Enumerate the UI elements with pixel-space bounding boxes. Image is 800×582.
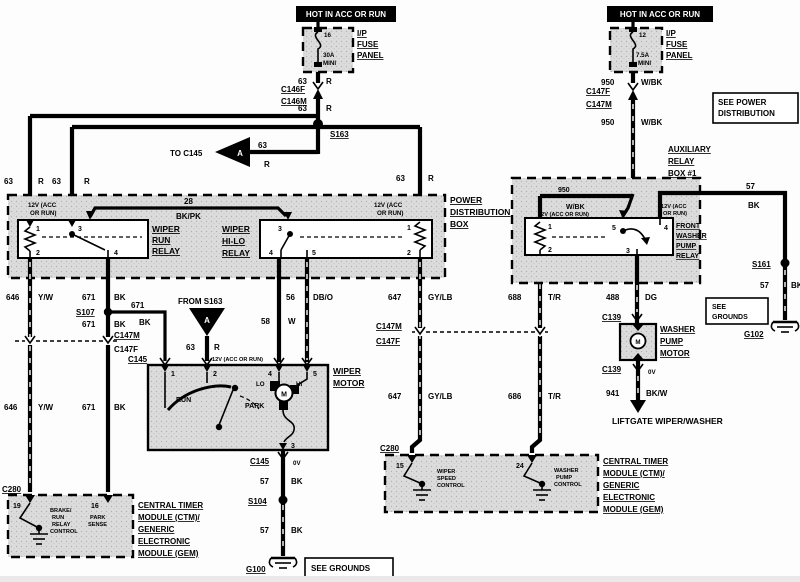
wire671-num: 671 bbox=[82, 293, 96, 302]
wire671-num-2: 671 bbox=[82, 320, 96, 329]
splice-s163-label: S163 bbox=[330, 130, 349, 139]
hilo-relay-pin4: 4 bbox=[269, 250, 273, 257]
off-page-arrow-a-down: A bbox=[189, 308, 225, 336]
wire671-color-2: BK bbox=[114, 320, 126, 329]
pdb-12v-3: 12V (ACC bbox=[374, 202, 403, 209]
hilo-relay-pin3: 3 bbox=[278, 226, 282, 233]
splice-s163-dot bbox=[313, 119, 323, 129]
arrow-a-letter-2: A bbox=[204, 316, 210, 325]
connector-c147-right-symbol bbox=[628, 83, 638, 100]
ctm-left-title-3: GENERIC bbox=[138, 525, 175, 534]
hilo-relay-pin2: 2 bbox=[407, 250, 411, 257]
washer-relay-name-1: FRONT bbox=[676, 223, 701, 230]
wire950-color: W/BK bbox=[641, 78, 663, 87]
wire57r-num: 57 bbox=[746, 182, 755, 191]
wire647-color-2: GY/LB bbox=[428, 392, 453, 401]
wire647-num-2: 647 bbox=[388, 392, 402, 401]
wire63-color-3: R bbox=[264, 160, 270, 169]
hilo-relay-name-3: RELAY bbox=[222, 248, 250, 258]
connector-c146f-label: C146F bbox=[281, 85, 305, 94]
pdb-12v-1: 12V (ACC bbox=[28, 202, 57, 209]
w63c-color: R bbox=[428, 174, 434, 183]
pdb-12v-2: OR RUN) bbox=[30, 210, 56, 217]
fuse-panel-left-name-1: I/P bbox=[357, 29, 367, 38]
see-power-label-2: DISTRIBUTION bbox=[718, 109, 775, 118]
wire57r-color-2: BK bbox=[791, 281, 800, 290]
wire646-color-2: Y/W bbox=[38, 403, 54, 412]
fuse-right-rating: 7.5A bbox=[636, 52, 650, 59]
washer-motor-name-1: WASHER bbox=[660, 325, 695, 334]
connector-c147-left bbox=[15, 336, 118, 345]
splice-s161-dot bbox=[781, 259, 790, 268]
w63a-num: 63 bbox=[4, 177, 13, 186]
w63a-color: R bbox=[38, 177, 44, 186]
ov-label-2: 0V bbox=[648, 369, 656, 376]
wire488-color: DG bbox=[645, 293, 657, 302]
fuse-panel-left: 16 30A MINI bbox=[303, 27, 353, 72]
pdb-title-2: DISTRIBUTION bbox=[450, 207, 510, 217]
see-grounds-right-1: SEE bbox=[712, 304, 726, 311]
wire950-num-3: 950 bbox=[558, 187, 570, 194]
washer-relay-pin3: 3 bbox=[626, 248, 630, 255]
wire57-num-1: 57 bbox=[260, 477, 269, 486]
wire63-num-4: 63 bbox=[186, 343, 195, 352]
fuse-right-size: MINI bbox=[638, 60, 651, 67]
wiper-hilo-relay: 3 4 5 1 2 bbox=[260, 220, 432, 258]
wiper-motor-m: M bbox=[281, 392, 287, 399]
from-s163-label: FROM S163 bbox=[178, 297, 223, 306]
run-relay-pin2: 2 bbox=[36, 250, 40, 257]
fuse-panel-right-name-2: FUSE bbox=[666, 40, 688, 49]
hilo-relay-name-2: HI-LO bbox=[222, 236, 246, 246]
wire57r-num-2: 57 bbox=[760, 281, 769, 290]
wire671-color-3: BK bbox=[114, 403, 126, 412]
washer-pump-motor-box: M bbox=[620, 324, 656, 360]
wire647-color: GY/LB bbox=[428, 293, 453, 302]
ctm-left-title-1: CENTRAL TIMER bbox=[138, 501, 203, 510]
wire950-color-3: W/BK bbox=[566, 204, 585, 211]
ground-g100-label: G100 bbox=[246, 565, 266, 574]
fuse-left-rating: 30A bbox=[323, 52, 335, 59]
wiring-diagram: HOT IN ACC OR RUN 16 30A MINI I/P FUSE P… bbox=[0, 0, 800, 582]
fuse-panel-left-name-3: PANEL bbox=[357, 51, 384, 60]
w63c-num: 63 bbox=[396, 174, 405, 183]
wire-688-686 bbox=[532, 255, 540, 453]
wire63-color-2: R bbox=[326, 104, 332, 113]
splice-s104-label: S104 bbox=[248, 497, 267, 506]
hot-banner-right-label: HOT IN ACC OR RUN bbox=[620, 10, 700, 19]
ctm-left-box: 19 BRAKE/ RUN RELAY CONTROL 16 PARK SENS… bbox=[8, 495, 133, 557]
wiring-diagram-page: HOT IN ACC OR RUN 16 30A MINI I/P FUSE P… bbox=[0, 0, 800, 582]
washer-relay-pin1: 1 bbox=[548, 224, 552, 231]
off-page-arrowhead bbox=[630, 400, 646, 413]
connector-c147f-mid-label: C147F bbox=[376, 337, 400, 346]
see-grounds-right-2: GROUNDS bbox=[712, 314, 748, 321]
run-relay-pin4: 4 bbox=[114, 250, 118, 257]
wire671-branch-color: BK bbox=[139, 318, 151, 327]
motor-12v-label: 12V (ACC OR RUN) bbox=[212, 357, 263, 363]
wiper-motor-pin3: 3 bbox=[291, 443, 295, 450]
wiper-motor-pin5: 5 bbox=[313, 371, 317, 378]
run-relay-name-3: RELAY bbox=[152, 246, 180, 256]
run-relay-name-2: RUN bbox=[152, 235, 170, 245]
wiper-motor-pin4: 4 bbox=[268, 371, 272, 378]
brake-label-4: CONTROL bbox=[50, 529, 78, 535]
run-relay-pin1: 1 bbox=[36, 226, 40, 233]
ctm-left-pin19: 19 bbox=[13, 503, 21, 510]
wire57-color-1: BK bbox=[291, 477, 303, 486]
ctm-right-pin24: 24 bbox=[516, 463, 524, 470]
liftgate-label: LIFTGATE WIPER/WASHER bbox=[612, 416, 723, 426]
ctm-right-title-3: GENERIC bbox=[603, 481, 640, 490]
connector-c147f-left-label: C147F bbox=[114, 345, 138, 354]
wiper-motor-box: 1 2 4 5 LO HI M 3 RUN PARK bbox=[148, 365, 328, 450]
wire-647 bbox=[412, 258, 420, 453]
to-c145-label: TO C145 bbox=[170, 149, 203, 158]
washer-relay-pin2: 2 bbox=[548, 247, 552, 254]
connector-c139-bottom-label: C139 bbox=[602, 365, 622, 374]
washer-relay-pin5: 5 bbox=[612, 225, 616, 232]
see-grounds-note-right: SEE GROUNDS bbox=[706, 298, 768, 324]
arrow-a-letter: A bbox=[237, 149, 243, 158]
connector-c147m-left-label: C147M bbox=[114, 331, 140, 340]
ground-g100-icon bbox=[269, 558, 296, 568]
hot-banner-left: HOT IN ACC OR RUN bbox=[296, 6, 396, 22]
fuse-right-pin: 12 bbox=[639, 32, 646, 39]
wiper-motor-name-2: MOTOR bbox=[333, 378, 364, 388]
brake-label-1: BRAKE/ bbox=[50, 508, 72, 514]
wiper-motor-pin2: 2 bbox=[213, 371, 217, 378]
pdb-title-3: BOX bbox=[450, 219, 469, 229]
wire63-color-4: R bbox=[214, 343, 220, 352]
hot-banner-left-label: HOT IN ACC OR RUN bbox=[306, 10, 386, 19]
washer-pump-3: CONTROL bbox=[554, 482, 582, 488]
ground-g102-label: G102 bbox=[744, 330, 764, 339]
washer-motor-name-2: PUMP bbox=[660, 337, 684, 346]
connector-c146-symbol bbox=[313, 82, 323, 99]
wire941-color: BK/W bbox=[646, 389, 668, 398]
ctm-left-title-4: ELECTRONIC bbox=[138, 537, 190, 546]
see-grounds-note-bottom: SEE GROUNDS bbox=[305, 558, 393, 577]
fuse-panel-right-name-1: I/P bbox=[666, 29, 676, 38]
wire28-num: 28 bbox=[184, 197, 193, 206]
splice-s107-label: S107 bbox=[76, 308, 95, 317]
wire950-num-2: 950 bbox=[601, 118, 615, 127]
hot-banner-right: HOT IN ACC OR RUN bbox=[607, 6, 713, 22]
run-relay-pin3: 3 bbox=[78, 226, 82, 233]
splice-s104-dot bbox=[279, 496, 288, 505]
wire671-branch-num: 671 bbox=[131, 301, 145, 310]
wire671-color: BK bbox=[114, 293, 126, 302]
wire646-num-2: 646 bbox=[4, 403, 18, 412]
wire688-color: T/R bbox=[548, 293, 561, 302]
brake-label-3: RELAY bbox=[52, 522, 71, 528]
fuse-panel-right-name-3: PANEL bbox=[666, 51, 693, 60]
scan-artifact-bar bbox=[0, 576, 800, 582]
washer-motor-m: M bbox=[635, 339, 640, 346]
pdb-title-1: POWER bbox=[450, 195, 482, 205]
hilo-relay-pin1: 1 bbox=[407, 225, 411, 232]
wire63-num-2: 63 bbox=[298, 104, 307, 113]
connector-c145-bottom-label: C145 bbox=[250, 457, 270, 466]
washer-relay-pin4: 4 bbox=[664, 225, 668, 232]
wire646-color: Y/W bbox=[38, 293, 54, 302]
wire58-color: W bbox=[288, 317, 296, 326]
wire58-num: 58 bbox=[261, 317, 270, 326]
pdb-12v-4: OR RUN) bbox=[377, 210, 403, 217]
washer-relay-name-2: WASHER bbox=[676, 233, 707, 240]
wiper-speed-3: CONTROL bbox=[437, 483, 465, 489]
wire941-num: 941 bbox=[606, 389, 620, 398]
wire950-num: 950 bbox=[601, 78, 615, 87]
wiper-motor-run: RUN bbox=[176, 397, 191, 404]
wire686-num: 686 bbox=[508, 392, 522, 401]
wire56-color: DB/O bbox=[313, 293, 333, 302]
wire686-color: T/R bbox=[548, 392, 561, 401]
washer-relay-name-3: PUMP bbox=[676, 243, 697, 250]
ctm-right-pin15: 15 bbox=[396, 463, 404, 470]
wire646-num: 646 bbox=[6, 293, 20, 302]
fuse-left-pin: 16 bbox=[324, 32, 331, 39]
wire57r-color: BK bbox=[748, 201, 760, 210]
washer-motor-name-3: MOTOR bbox=[660, 349, 690, 358]
wire488-num: 488 bbox=[606, 293, 620, 302]
washer-pump-1: WASHER bbox=[554, 468, 579, 474]
ctm-right-box: 15 WIPER SPEED CONTROL 24 WASHER PUMP CO… bbox=[385, 455, 598, 512]
wiper-motor-lo: LO bbox=[256, 381, 265, 388]
hilo-relay-name-1: WIPER bbox=[222, 224, 250, 234]
park-sense-2: SENSE bbox=[88, 522, 107, 528]
ctm-left-title-5: MODULE (GEM) bbox=[138, 549, 199, 558]
splice-s161-label: S161 bbox=[752, 260, 771, 269]
connector-c139-top-label: C139 bbox=[602, 313, 622, 322]
wiper-motor-pin1: 1 bbox=[171, 371, 175, 378]
connector-c280-right-label: C280 bbox=[380, 444, 400, 453]
ctm-left-title-2: MODULE (CTM)/ bbox=[138, 513, 201, 522]
wiper-motor-name-1: WIPER bbox=[333, 366, 361, 376]
washer-relay-name-4: RELAY bbox=[676, 253, 699, 260]
ctm-right-title-4: ELECTRONIC bbox=[603, 493, 655, 502]
wire63-color: R bbox=[326, 77, 332, 86]
see-grounds-bottom-label: SEE GROUNDS bbox=[311, 564, 371, 573]
w63b-color: R bbox=[84, 177, 90, 186]
connector-c147m-mid-label: C147M bbox=[376, 322, 402, 331]
connector-c145-top-label: C145 bbox=[128, 355, 148, 364]
ov-label-1: 0V bbox=[293, 460, 301, 467]
washer-pump-2: PUMP bbox=[556, 475, 572, 481]
wire688-num: 688 bbox=[508, 293, 522, 302]
wire671-num-3: 671 bbox=[82, 403, 96, 412]
see-power-note: SEE POWER DISTRIBUTION bbox=[713, 93, 798, 123]
aux-12v-b1: 12V (ACC bbox=[661, 204, 687, 210]
see-power-label-1: SEE POWER bbox=[718, 98, 767, 107]
wiper-speed-1: WIPER bbox=[437, 469, 455, 475]
brake-label-2: RUN bbox=[52, 515, 64, 521]
hilo-relay-pin5: 5 bbox=[312, 250, 316, 257]
off-page-arrow-a-left: A bbox=[215, 137, 250, 167]
park-sense-1: PARK bbox=[90, 515, 105, 521]
ctm-right-title-1: CENTRAL TIMER bbox=[603, 457, 668, 466]
wire950-color-2: W/BK bbox=[641, 118, 663, 127]
aux-box-title-3: BOX #1 bbox=[668, 169, 697, 178]
aux-box-title-1: AUXILIARY bbox=[668, 145, 711, 154]
ctm-right-title-2: MODULE (CTM)/ bbox=[603, 469, 666, 478]
wire57-color-2: BK bbox=[291, 526, 303, 535]
wire57-num-2: 57 bbox=[260, 526, 269, 535]
ctm-left-pin16: 16 bbox=[91, 503, 99, 510]
front-washer-pump-relay: 1 2 5 4 3 bbox=[525, 218, 673, 255]
fuse-left-size: MINI bbox=[323, 60, 336, 67]
connector-c147f-right-label: C147F bbox=[586, 87, 610, 96]
run-relay-name-1: WIPER bbox=[152, 224, 180, 234]
connector-c147-middle bbox=[412, 327, 548, 336]
aux-12v-b2: OR RUN) bbox=[663, 211, 687, 217]
ctm-right-title-5: MODULE (GEM) bbox=[603, 505, 664, 514]
aux-box-title-2: RELAY bbox=[668, 157, 695, 166]
wire63-num-3: 63 bbox=[258, 141, 267, 150]
wire56-num: 56 bbox=[286, 293, 295, 302]
w63b-num: 63 bbox=[52, 177, 61, 186]
wiper-run-relay: 1 2 3 4 bbox=[18, 220, 148, 258]
connector-c147m-right-label: C147M bbox=[586, 100, 612, 109]
wire647-num: 647 bbox=[388, 293, 402, 302]
wiper-motor-park: PARK bbox=[245, 403, 264, 410]
wire28-color: BK/PK bbox=[176, 212, 201, 221]
fuse-panel-right: 12 7.5A MINI bbox=[610, 27, 662, 72]
wiper-speed-2: SPEED bbox=[437, 476, 456, 482]
ground-g102-icon bbox=[771, 322, 798, 332]
connector-c280-left-label: C280 bbox=[2, 485, 22, 494]
fuse-panel-left-name-2: FUSE bbox=[357, 40, 379, 49]
